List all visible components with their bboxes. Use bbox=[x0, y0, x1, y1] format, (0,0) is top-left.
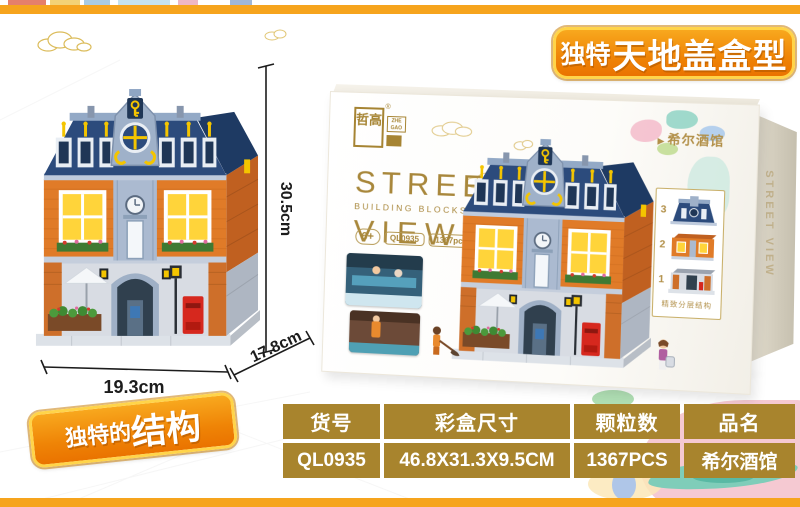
minifig-sweeper bbox=[426, 324, 462, 360]
spec-table: 货号 彩盒尺寸 颗粒数 品名 QL0935 46.8X31.3X9.5CM 13… bbox=[283, 404, 795, 478]
layer-number-2: 2 bbox=[657, 238, 668, 250]
spec-value-item-no: QL0935 bbox=[283, 443, 380, 478]
banner-prefix: 独特 bbox=[560, 35, 610, 71]
spec-header-piece-count: 颗粒数 bbox=[574, 404, 680, 439]
top-orange-bar bbox=[0, 5, 800, 14]
layer-structure-panel: 3 2 bbox=[652, 188, 726, 321]
layer-floor1-art bbox=[666, 264, 718, 297]
spec-header-item-no: 货号 bbox=[283, 404, 380, 439]
model-number-badge: QL0935 bbox=[384, 231, 426, 246]
top-edge-decoration bbox=[178, 0, 198, 5]
spec-header-box-size: 彩盒尺寸 bbox=[384, 404, 570, 439]
box-splash-teal bbox=[666, 110, 698, 130]
arrow-icon: ▶ bbox=[658, 136, 666, 145]
interior-scene-photo-2 bbox=[349, 310, 421, 356]
box-side-text: STREET VIEW bbox=[763, 159, 775, 289]
spec-value-product-name: 希尔酒馆 bbox=[684, 443, 795, 478]
layer-number-3: 3 bbox=[658, 204, 669, 216]
product-name-on-box: ▶希尔酒馆 bbox=[647, 128, 736, 151]
top-edge-decoration bbox=[118, 0, 170, 5]
zhegao-logo-cn: 哲高 bbox=[353, 107, 384, 148]
layer-roof-art bbox=[668, 193, 720, 228]
top-edge-decoration bbox=[230, 0, 252, 5]
top-right-banner: 独特 天地盖盒型 bbox=[553, 27, 795, 79]
layer-panel-caption: 精致分层结构 bbox=[655, 298, 718, 311]
layer-floor2-art bbox=[667, 229, 719, 262]
dimension-width-label: 19.3cm bbox=[103, 377, 164, 397]
layer-number-1: 1 bbox=[656, 273, 667, 285]
banner-prefix: 独特的 bbox=[64, 414, 133, 453]
age-badge: 6+ bbox=[355, 228, 380, 245]
minifig-girl bbox=[652, 337, 678, 375]
spec-value-box-size: 46.8X31.3X9.5CM bbox=[384, 443, 570, 478]
zhegao-logo-en: ZHE GAO bbox=[387, 116, 407, 133]
dimension-depth-label: 17.8cm bbox=[248, 328, 304, 366]
top-edge-decoration bbox=[8, 0, 46, 5]
cloud-outline bbox=[38, 32, 91, 51]
bottom-orange-bar bbox=[0, 498, 800, 507]
registered-mark: ® bbox=[385, 104, 390, 111]
zhegao-logo: 哲高 ® ZHE GAO bbox=[353, 105, 407, 161]
banner-title: 天地盖盒型 bbox=[613, 29, 788, 78]
product-box: 哲高 ® ZHE GAO STREET BUILDING BLOCKS SERI… bbox=[321, 91, 760, 395]
zhegao-logo-seal bbox=[386, 135, 401, 147]
spec-header-product-name: 品名 bbox=[684, 404, 795, 439]
top-edge-decoration bbox=[84, 0, 110, 5]
top-edge-decoration bbox=[50, 0, 80, 5]
banner-title: 结构 bbox=[128, 398, 203, 456]
box-building-art bbox=[448, 109, 658, 378]
product-sheet: { "page": { "background": "#FFFFFF", "ed… bbox=[0, 0, 800, 507]
dimension-height-label: 30.5cm bbox=[277, 182, 294, 236]
interior-scene-photo-1 bbox=[345, 253, 423, 309]
cloud-outline-small bbox=[265, 30, 286, 40]
spec-value-piece-count: 1367PCS bbox=[574, 443, 680, 478]
